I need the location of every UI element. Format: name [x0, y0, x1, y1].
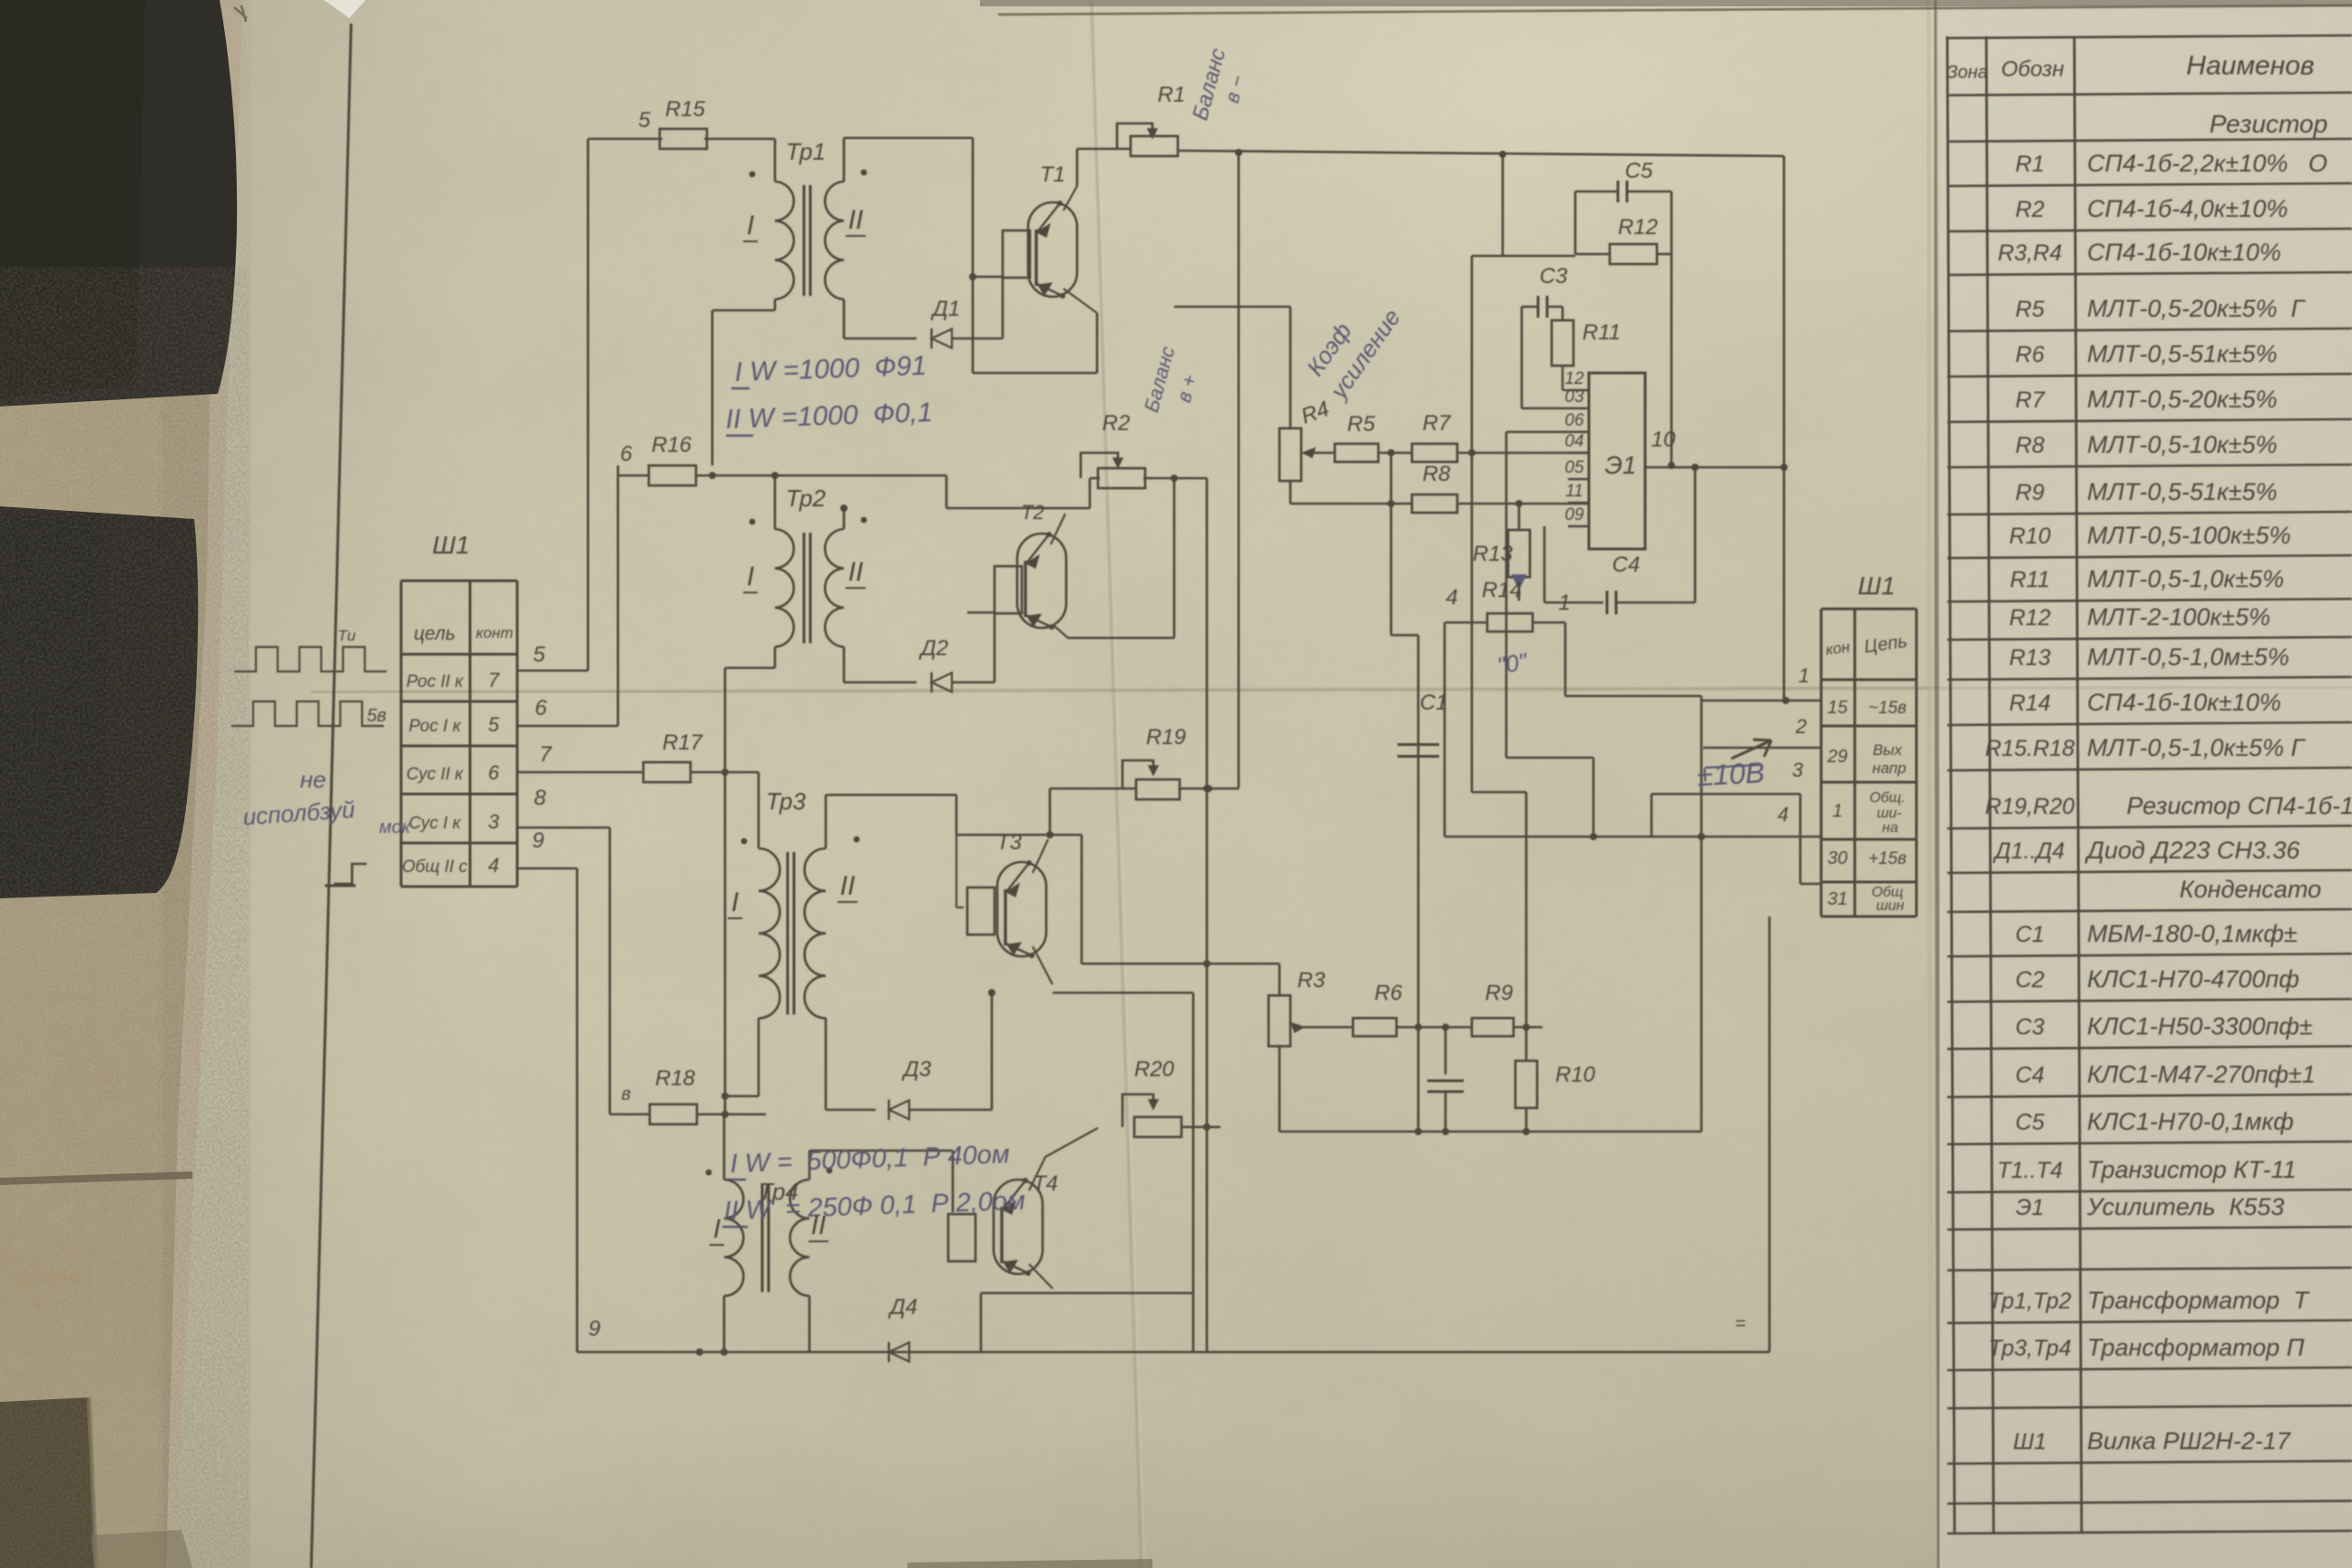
svg-text:R16: R16 — [652, 433, 692, 457]
svg-text:R10: R10 — [1555, 1063, 1596, 1087]
svg-text:МЛТ-0,5-51к±5%: МЛТ-0,5-51к±5% — [2087, 478, 2278, 505]
svg-text:Д1..Д4: Д1..Д4 — [1993, 838, 2065, 864]
svg-text:12: 12 — [1564, 369, 1584, 388]
svg-text:R1: R1 — [1158, 83, 1186, 107]
svg-text:Вилка РШ2Н-2-17: Вилка РШ2Н-2-17 — [2087, 1427, 2291, 1455]
svg-text:Т3: Т3 — [996, 830, 1023, 855]
svg-text:С1: С1 — [2015, 922, 2044, 947]
svg-text:R11: R11 — [2010, 567, 2050, 593]
svg-text:I: I — [713, 1214, 720, 1244]
svg-text:СП4-1б-4,0к±10%: СП4-1б-4,0к±10% — [2087, 195, 2288, 222]
svg-text:Т1: Т1 — [1040, 162, 1065, 187]
svg-text:Тр4: Тр4 — [759, 1178, 799, 1205]
svg-text:9: 9 — [532, 828, 544, 853]
svg-text:7: 7 — [539, 742, 553, 767]
svg-text:R6: R6 — [2015, 342, 2044, 367]
svg-text:С1: С1 — [1420, 691, 1448, 715]
svg-text:Тр3,Тр4: Тр3,Тр4 — [1988, 1336, 2071, 1361]
svg-text:Д2: Д2 — [918, 636, 948, 661]
svg-text:МЛТ-0,5-10к±5%: МЛТ-0,5-10к±5% — [2087, 431, 2278, 458]
svg-text:кон: кон — [1825, 638, 1852, 659]
svg-text:7: 7 — [488, 669, 500, 691]
svg-text:Тр3: Тр3 — [766, 788, 806, 815]
svg-text:R13: R13 — [1473, 542, 1514, 566]
svg-text:II: II — [848, 205, 864, 235]
svg-text:С2: С2 — [2015, 967, 2044, 993]
svg-text:МЛТ-0,5-51к±5%: МЛТ-0,5-51к±5% — [2087, 340, 2278, 367]
svg-text:15: 15 — [1828, 698, 1848, 718]
svg-text:Зона: Зона — [1946, 63, 1988, 83]
svg-text:R2: R2 — [1102, 411, 1131, 436]
svg-text:МЛТ-0,5-100к±5%: МЛТ-0,5-100к±5% — [2087, 522, 2291, 549]
svg-text:КЛС1-Н70-0,1мкф: КЛС1-Н70-0,1мкф — [2087, 1108, 2294, 1135]
svg-text:~15в: ~15в — [1868, 699, 1906, 718]
svg-text:МЛТ-2-100к±5%: МЛТ-2-100к±5% — [2087, 603, 2270, 631]
svg-text:Э1: Э1 — [2015, 1195, 2043, 1220]
svg-text:8: 8 — [534, 786, 546, 810]
svg-text:Вых: Вых — [1873, 741, 1903, 759]
svg-text:R9: R9 — [2015, 480, 2044, 505]
svg-text:R11: R11 — [1583, 320, 1621, 345]
svg-text:03: 03 — [1564, 387, 1584, 407]
svg-text:конт: конт — [476, 624, 514, 642]
svg-text:С5: С5 — [2015, 1110, 2044, 1135]
svg-text:КЛС1-Н50-3300пф±: КЛС1-Н50-3300пф± — [2087, 1013, 2313, 1040]
svg-text:R12: R12 — [1618, 215, 1658, 240]
svg-text:КЛС1-Н70-4700пф: КЛС1-Н70-4700пф — [2087, 965, 2299, 993]
svg-text:С4: С4 — [2015, 1063, 2044, 1088]
svg-text:Усилитель К553: Усилитель К553 — [2086, 1193, 2284, 1220]
svg-text:30: 30 — [1828, 848, 1847, 868]
svg-text:СП4-1б-10к±10%: СП4-1б-10к±10% — [2087, 239, 2281, 266]
svg-text:=: = — [1735, 1314, 1746, 1334]
svg-text:Наименов: Наименов — [2186, 51, 2314, 81]
svg-text:5: 5 — [533, 642, 545, 667]
svg-text:+15в: +15в — [1868, 849, 1906, 868]
svg-text:29: 29 — [1827, 747, 1847, 767]
svg-text:шuн: шuн — [1877, 898, 1905, 914]
svg-text:МЛТ-0,5-1,0к±5% Г: МЛТ-0,5-1,0к±5% Г — [2087, 734, 2307, 761]
svg-text:Д1: Д1 — [930, 297, 960, 321]
svg-text:в: в — [622, 1084, 631, 1104]
svg-text:КЛС1-М47-270пф±1: КЛС1-М47-270пф±1 — [2087, 1061, 2316, 1088]
svg-text:2: 2 — [1795, 715, 1807, 738]
svg-text:5: 5 — [638, 108, 651, 132]
svg-text:Диод Д223 СН3.36: Диод Д223 СН3.36 — [2084, 837, 2301, 864]
svg-text:09: 09 — [1564, 505, 1584, 524]
svg-text:04: 04 — [1564, 432, 1583, 451]
svg-text:II: II — [848, 557, 864, 587]
svg-text:R8: R8 — [1423, 462, 1451, 486]
svg-text:Ш1: Ш1 — [432, 531, 469, 559]
svg-text:6: 6 — [620, 442, 632, 466]
svg-text:06: 06 — [1564, 411, 1584, 430]
svg-text:МБМ-180-0,1мкф±: МБМ-180-0,1мкф± — [2087, 920, 2298, 947]
svg-text:С4: С4 — [1612, 553, 1641, 577]
svg-text:R1: R1 — [2015, 152, 2044, 177]
svg-text:10: 10 — [1651, 427, 1676, 452]
svg-text:R19: R19 — [1146, 725, 1186, 750]
svg-text:СП4-1б-10к±10%: СП4-1б-10к±10% — [2087, 689, 2281, 716]
svg-text:Тр1: Тр1 — [786, 138, 826, 165]
svg-text:МЛТ-0,5-1,0м±5%: МЛТ-0,5-1,0м±5% — [2087, 643, 2289, 671]
svg-text:R10: R10 — [2009, 524, 2051, 549]
svg-text:R8: R8 — [2015, 433, 2044, 458]
svg-text:II: II — [840, 871, 856, 901]
svg-text:R15.R18: R15.R18 — [1985, 736, 2075, 761]
svg-text:Tи: Tи — [338, 627, 356, 644]
svg-text:9: 9 — [588, 1317, 600, 1341]
svg-text:3: 3 — [1792, 759, 1804, 781]
svg-text:Рос II к: Рос II к — [407, 672, 465, 691]
svg-text:I: I — [747, 562, 754, 592]
svg-text:Ш1: Ш1 — [2014, 1429, 2047, 1455]
svg-text:Трансформатор Т: Трансформатор Т — [2087, 1287, 2310, 1314]
svg-text:Общ II с: Общ II с — [402, 857, 468, 877]
svg-text:R12: R12 — [2009, 605, 2051, 631]
svg-text:Резистор СП4-1б-1,0: Резистор СП4-1б-1,0 — [2126, 792, 2352, 819]
svg-text:Рос I к: Рос I к — [408, 717, 461, 736]
svg-text:R14: R14 — [1482, 578, 1522, 603]
svg-text:R3: R3 — [1298, 968, 1326, 993]
svg-text:6: 6 — [534, 696, 547, 720]
svg-text:Трансформатор П: Трансформатор П — [2087, 1334, 2305, 1361]
svg-text:СП4-1б-2,2к±10% О: СП4-1б-2,2к±10% О — [2087, 150, 2327, 177]
svg-text:3: 3 — [488, 810, 500, 833]
svg-text:Конденсато: Конденсато — [2180, 876, 2321, 903]
svg-text:Д3: Д3 — [901, 1057, 932, 1082]
svg-text:Ш1: Ш1 — [1857, 572, 1895, 600]
svg-text:Транзистор КТ-11: Транзистор КТ-11 — [2087, 1156, 2297, 1183]
svg-text:±10В: ±10В — [1696, 756, 1765, 792]
svg-text:R9: R9 — [1485, 981, 1514, 1005]
svg-text:R3,R4: R3,R4 — [1998, 240, 2063, 266]
svg-text:1: 1 — [1798, 664, 1809, 687]
svg-text:Резистор: Резистор — [2210, 110, 2327, 138]
svg-text:R17: R17 — [662, 730, 704, 755]
svg-text:Общ.: Общ. — [1869, 790, 1906, 806]
svg-text:Т1..Т4: Т1..Т4 — [1997, 1158, 2063, 1183]
svg-text:1: 1 — [1832, 801, 1842, 821]
svg-text:Тр2: Тр2 — [786, 485, 826, 512]
svg-text:МЛТ-0,5-20к±5%: МЛТ-0,5-20к±5% — [2087, 386, 2278, 413]
svg-text:R5: R5 — [1347, 412, 1376, 436]
svg-text:МЛТ-0,5-1,0к±5%: МЛТ-0,5-1,0к±5% — [2087, 565, 2284, 593]
svg-text:С3: С3 — [1540, 264, 1568, 289]
svg-text:R7: R7 — [1423, 411, 1452, 436]
svg-text:R2: R2 — [2015, 197, 2044, 222]
svg-text:не: не — [300, 766, 327, 793]
svg-text:R6: R6 — [1375, 981, 1403, 1005]
svg-text:цель: цель — [414, 623, 456, 644]
svg-text:мок: мок — [379, 818, 412, 838]
svg-text:I: I — [747, 211, 754, 240]
svg-text:R5: R5 — [2015, 297, 2044, 322]
svg-text:6: 6 — [488, 761, 500, 784]
svg-text:R20: R20 — [1134, 1057, 1175, 1082]
svg-text:Обозн: Обозн — [2001, 57, 2064, 82]
svg-text:шu-: шu- — [1877, 806, 1902, 821]
svg-text:R14: R14 — [2009, 691, 2051, 716]
svg-text:напр: напр — [1872, 759, 1906, 777]
svg-text:31: 31 — [1828, 889, 1847, 909]
svg-text:Сус II к: Сус II к — [407, 765, 465, 784]
svg-text:Т2: Т2 — [1021, 501, 1044, 524]
svg-text:на: на — [1882, 820, 1898, 836]
svg-text:5в: 5в — [367, 706, 387, 726]
svg-text:R13: R13 — [2009, 645, 2051, 671]
svg-text:Т4: Т4 — [1033, 1171, 1058, 1196]
svg-text:4: 4 — [488, 854, 499, 877]
svg-text:С5: С5 — [1625, 159, 1653, 183]
svg-text:4: 4 — [1445, 585, 1457, 610]
svg-text:4: 4 — [1778, 803, 1788, 826]
svg-text:R19,R20: R19,R20 — [1985, 794, 2075, 819]
svg-text:11: 11 — [1565, 482, 1583, 501]
svg-text:Тр1,Тр2: Тр1,Тр2 — [1988, 1289, 2072, 1314]
svg-text:5: 5 — [488, 713, 500, 736]
svg-text:R15: R15 — [665, 97, 706, 122]
svg-text:05: 05 — [1564, 458, 1584, 477]
svg-text:1: 1 — [1558, 591, 1570, 615]
svg-text:R18: R18 — [655, 1066, 696, 1091]
svg-text:R7: R7 — [2015, 387, 2045, 413]
svg-text:С3: С3 — [2015, 1014, 2044, 1040]
svg-text:II: II — [811, 1210, 827, 1240]
svg-text:Сус I к: Сус I к — [408, 814, 461, 833]
svg-text:МЛТ-0,5-20к±5% Г: МЛТ-0,5-20к±5% Г — [2087, 295, 2307, 322]
svg-text:Д4: Д4 — [887, 1295, 917, 1319]
svg-text:Э1: Э1 — [1605, 451, 1637, 479]
svg-text:I: I — [731, 887, 739, 917]
